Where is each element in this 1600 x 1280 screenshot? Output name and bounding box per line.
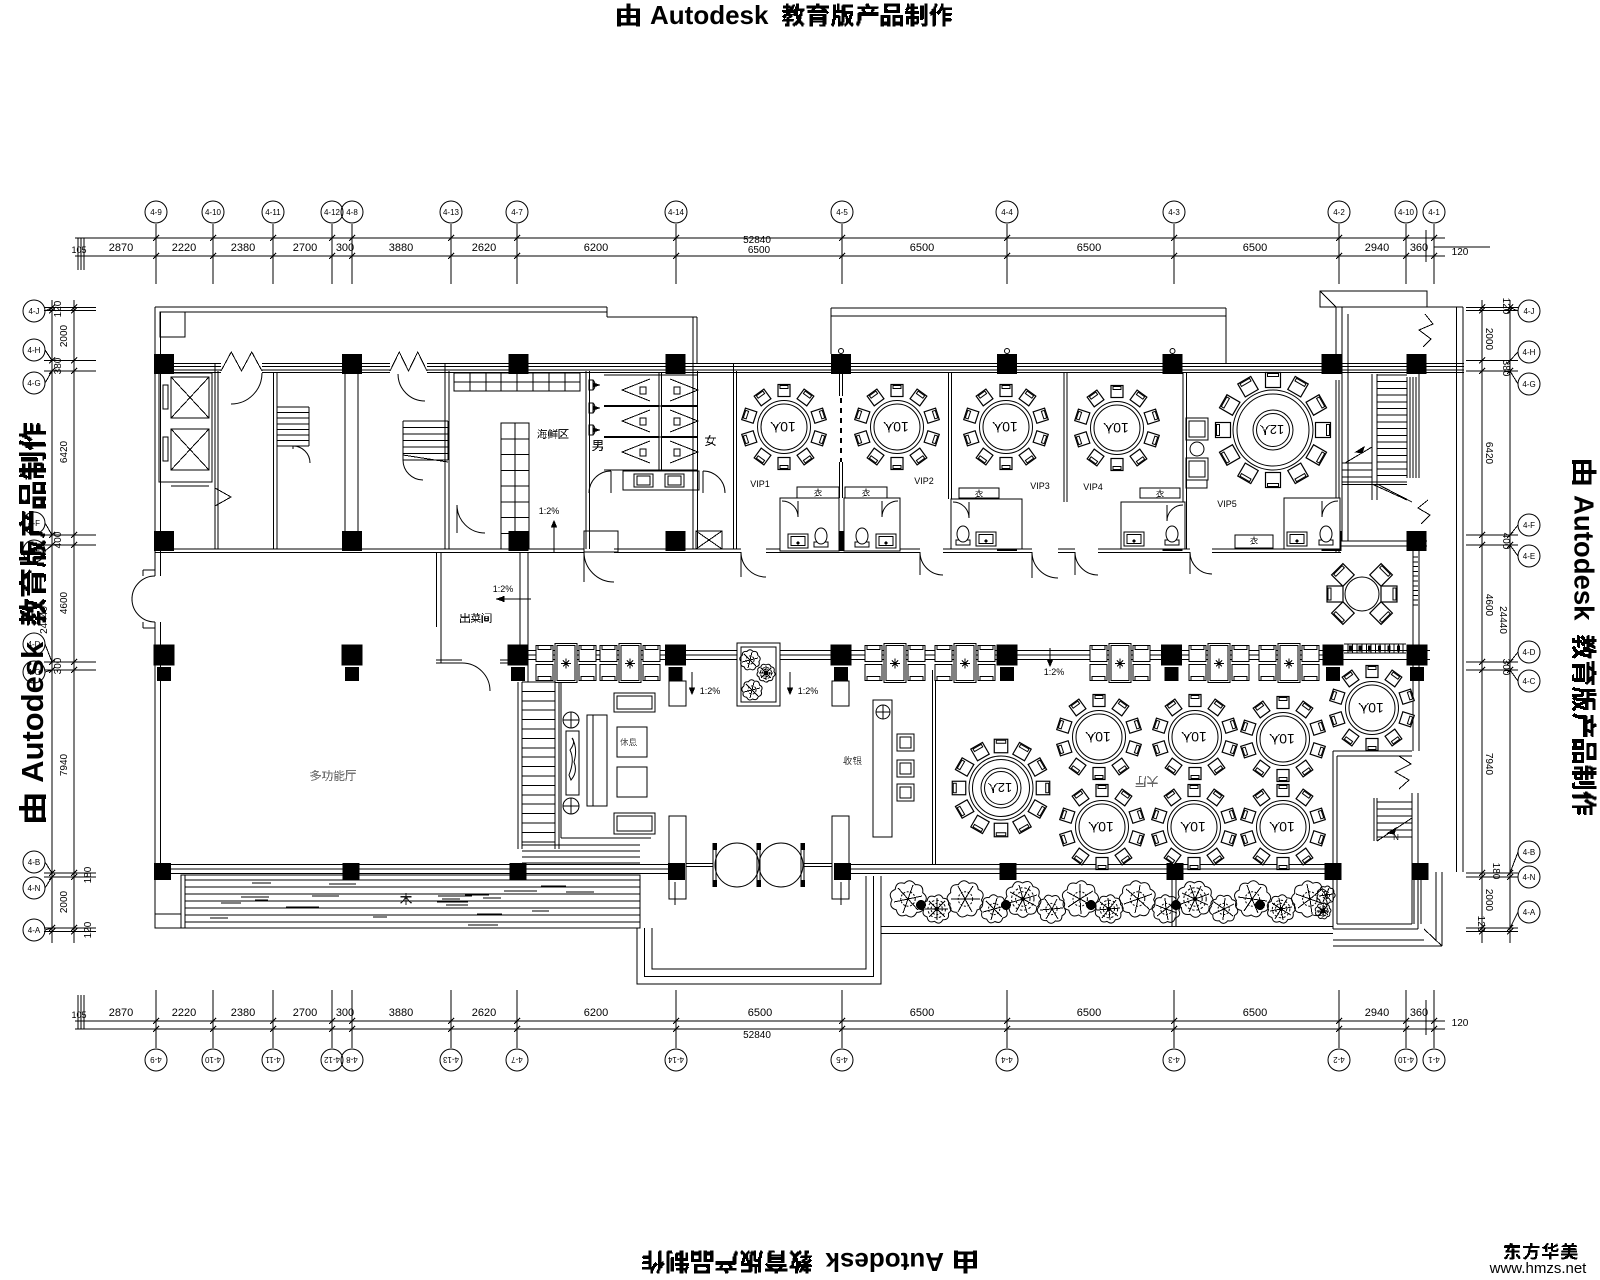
svg-text:4-3: 4-3 bbox=[1168, 1055, 1180, 1064]
svg-text:10: 10 bbox=[1279, 819, 1295, 835]
svg-text:3880: 3880 bbox=[389, 242, 413, 254]
svg-text:1:2%: 1:2% bbox=[700, 686, 721, 696]
svg-text:300: 300 bbox=[336, 242, 354, 254]
svg-text:6500: 6500 bbox=[748, 245, 771, 256]
svg-text:2700: 2700 bbox=[293, 242, 317, 254]
svg-text:2940: 2940 bbox=[1365, 1007, 1389, 1019]
svg-text:N: N bbox=[1393, 833, 1399, 842]
svg-text:4-H: 4-H bbox=[1523, 348, 1536, 357]
svg-text:4-J: 4-J bbox=[28, 307, 39, 316]
svg-text:4600: 4600 bbox=[59, 591, 70, 614]
svg-text:4-7: 4-7 bbox=[511, 208, 523, 217]
svg-text:VIP4: VIP4 bbox=[1083, 482, 1103, 492]
svg-text:4-B: 4-B bbox=[1523, 848, 1535, 857]
svg-text:4-4: 4-4 bbox=[1001, 208, 1013, 217]
svg-text:4-1: 4-1 bbox=[1428, 1055, 1440, 1064]
svg-text:1:2%: 1:2% bbox=[539, 506, 560, 516]
svg-text:52840: 52840 bbox=[743, 1030, 771, 1041]
svg-text:6500: 6500 bbox=[1243, 1007, 1267, 1019]
svg-text:2870: 2870 bbox=[109, 1007, 133, 1019]
svg-text:4-13: 4-13 bbox=[442, 1055, 459, 1064]
svg-text:12: 12 bbox=[998, 780, 1012, 795]
svg-text:VIP3: VIP3 bbox=[1030, 481, 1050, 491]
svg-text:4-11: 4-11 bbox=[265, 1055, 281, 1064]
svg-text:120: 120 bbox=[1452, 1018, 1469, 1029]
svg-text:4-3: 4-3 bbox=[1168, 208, 1180, 217]
svg-text:120: 120 bbox=[83, 921, 94, 938]
svg-text:4-10: 4-10 bbox=[204, 1055, 221, 1064]
svg-text:105: 105 bbox=[71, 1010, 86, 1020]
svg-text:4-5: 4-5 bbox=[836, 208, 848, 217]
svg-text:360: 360 bbox=[1410, 1007, 1428, 1019]
svg-text:180: 180 bbox=[1490, 863, 1501, 880]
svg-text:4-9: 4-9 bbox=[150, 208, 162, 217]
svg-text:4-12: 4-12 bbox=[323, 1055, 340, 1064]
svg-text:2870: 2870 bbox=[109, 242, 133, 254]
svg-text:10: 10 bbox=[1113, 420, 1129, 436]
svg-text:300: 300 bbox=[336, 1007, 354, 1019]
svg-text:2380: 2380 bbox=[231, 242, 255, 254]
svg-text:2220: 2220 bbox=[172, 1007, 196, 1019]
svg-text:360: 360 bbox=[1410, 242, 1428, 254]
svg-text:www.hmzs.net: www.hmzs.net bbox=[1489, 1260, 1588, 1277]
svg-text:10: 10 bbox=[1095, 729, 1111, 745]
svg-text:3880: 3880 bbox=[389, 1007, 413, 1019]
svg-text:1:2%: 1:2% bbox=[1044, 667, 1065, 677]
svg-text:1:2%: 1:2% bbox=[798, 686, 819, 696]
svg-text:4-A: 4-A bbox=[1523, 908, 1536, 917]
svg-text:4600: 4600 bbox=[1483, 594, 1494, 617]
svg-text:400: 400 bbox=[1500, 533, 1511, 550]
svg-text:4-F: 4-F bbox=[1523, 521, 1535, 530]
svg-text:12: 12 bbox=[1270, 422, 1284, 437]
svg-text:4-14: 4-14 bbox=[667, 1055, 684, 1064]
svg-text:VIP2: VIP2 bbox=[914, 476, 934, 486]
svg-text:4-4: 4-4 bbox=[1001, 1055, 1013, 1064]
svg-text:4-5: 4-5 bbox=[836, 1055, 848, 1064]
svg-text:6420: 6420 bbox=[1483, 442, 1494, 465]
svg-text:4-7: 4-7 bbox=[511, 1055, 523, 1064]
svg-text:400: 400 bbox=[53, 531, 64, 548]
svg-text:1:2%: 1:2% bbox=[493, 584, 514, 594]
svg-text:10: 10 bbox=[893, 419, 909, 435]
svg-text:4-9: 4-9 bbox=[150, 1055, 162, 1064]
svg-text:6420: 6420 bbox=[59, 440, 70, 463]
svg-text:4-11: 4-11 bbox=[265, 208, 281, 217]
svg-text:4-10: 4-10 bbox=[1397, 1055, 1414, 1064]
svg-text:380: 380 bbox=[53, 357, 64, 374]
svg-text:10: 10 bbox=[780, 419, 796, 435]
svg-text:10: 10 bbox=[1190, 819, 1206, 835]
svg-text:380: 380 bbox=[1500, 360, 1511, 377]
svg-text:4-8: 4-8 bbox=[346, 208, 358, 217]
svg-text:4-C: 4-C bbox=[1523, 677, 1536, 686]
svg-text:7940: 7940 bbox=[59, 753, 70, 776]
svg-text:4-H: 4-H bbox=[28, 346, 41, 355]
svg-text:10: 10 bbox=[1098, 819, 1114, 835]
svg-text:4-N: 4-N bbox=[28, 884, 41, 893]
svg-text:2000: 2000 bbox=[59, 890, 70, 913]
svg-text:120: 120 bbox=[1452, 247, 1469, 258]
svg-text:2620: 2620 bbox=[472, 242, 496, 254]
svg-text:4-G: 4-G bbox=[1522, 380, 1535, 389]
svg-text:2000: 2000 bbox=[1483, 889, 1494, 912]
svg-text:4-12: 4-12 bbox=[324, 208, 341, 217]
svg-text:2000: 2000 bbox=[59, 324, 70, 347]
svg-text:6500: 6500 bbox=[910, 242, 934, 254]
svg-text:6500: 6500 bbox=[910, 1007, 934, 1019]
svg-text:2940: 2940 bbox=[1365, 242, 1389, 254]
svg-text:2700: 2700 bbox=[293, 1007, 317, 1019]
svg-text:2380: 2380 bbox=[231, 1007, 255, 1019]
svg-text:10: 10 bbox=[1002, 419, 1018, 435]
svg-text:120: 120 bbox=[53, 300, 64, 317]
svg-text:2620: 2620 bbox=[472, 1007, 496, 1019]
svg-text:4-1: 4-1 bbox=[1428, 208, 1440, 217]
svg-text:120: 120 bbox=[1475, 916, 1486, 933]
svg-text:VIP5: VIP5 bbox=[1217, 499, 1237, 509]
svg-text:10: 10 bbox=[1368, 700, 1384, 716]
svg-text:6500: 6500 bbox=[748, 1007, 772, 1019]
svg-text:4-14: 4-14 bbox=[668, 208, 685, 217]
svg-text:300: 300 bbox=[1500, 659, 1511, 676]
svg-text:4-8: 4-8 bbox=[346, 1055, 358, 1064]
svg-text:4-10: 4-10 bbox=[1398, 208, 1415, 217]
svg-text:4-2: 4-2 bbox=[1333, 1055, 1345, 1064]
svg-text:4-N: 4-N bbox=[1523, 873, 1536, 882]
svg-text:105: 105 bbox=[71, 245, 86, 255]
svg-text:4-J: 4-J bbox=[1523, 307, 1534, 316]
svg-text:VIP1: VIP1 bbox=[750, 479, 770, 489]
svg-text:6200: 6200 bbox=[584, 242, 608, 254]
svg-text:180: 180 bbox=[83, 866, 94, 883]
svg-text:2220: 2220 bbox=[172, 242, 196, 254]
svg-text:120: 120 bbox=[1500, 298, 1511, 315]
svg-text:4-13: 4-13 bbox=[443, 208, 460, 217]
svg-text:4-2: 4-2 bbox=[1333, 208, 1345, 217]
svg-text:4-A: 4-A bbox=[28, 926, 41, 935]
svg-text:2000: 2000 bbox=[1483, 328, 1494, 351]
svg-text:6500: 6500 bbox=[1243, 242, 1267, 254]
svg-text:300: 300 bbox=[53, 657, 64, 674]
svg-text:7940: 7940 bbox=[1483, 753, 1494, 776]
svg-text:6500: 6500 bbox=[1077, 242, 1101, 254]
svg-text:10: 10 bbox=[1279, 731, 1295, 747]
svg-text:4-10: 4-10 bbox=[205, 208, 222, 217]
svg-text:4-D: 4-D bbox=[1523, 648, 1536, 657]
svg-text:4-G: 4-G bbox=[27, 379, 40, 388]
svg-text:6500: 6500 bbox=[1077, 1007, 1101, 1019]
svg-text:24440: 24440 bbox=[1497, 606, 1508, 634]
svg-text:4-B: 4-B bbox=[28, 858, 40, 867]
svg-text:4-E: 4-E bbox=[1523, 552, 1535, 561]
svg-text:6200: 6200 bbox=[584, 1007, 608, 1019]
svg-text:10: 10 bbox=[1191, 729, 1207, 745]
